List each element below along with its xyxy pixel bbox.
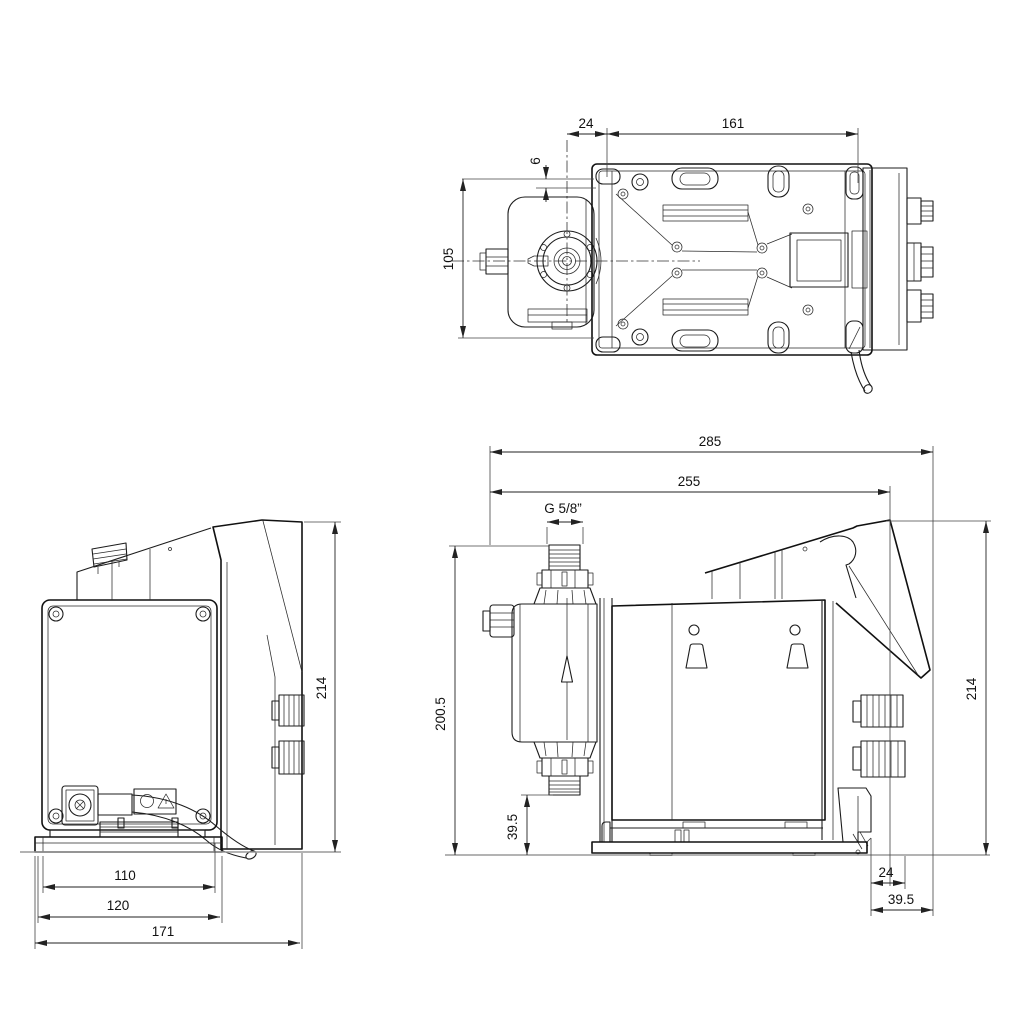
- top-view: 24 161 6 105: [441, 116, 933, 395]
- rear-view: 214 110 120 171: [20, 520, 341, 949]
- dim-top-105: 105: [441, 248, 456, 271]
- top-motor-housing: [480, 197, 601, 329]
- rear-mains-connector: [62, 786, 132, 825]
- dim-side-39-5-left: 39.5: [505, 814, 520, 840]
- dim-side-24: 24: [878, 865, 894, 880]
- rear-base: [35, 818, 222, 852]
- dim-top-24: 24: [578, 116, 594, 131]
- rear-view-dimensions: 214 110 120 171: [35, 522, 341, 949]
- flow-direction-arrow: [562, 598, 573, 740]
- side-dosing-head: [483, 545, 612, 842]
- side-wall-bracket: [838, 788, 871, 854]
- rear-control-panel: [213, 520, 304, 849]
- side-connector-knobs: [853, 695, 905, 777]
- top-mounting-plate: [592, 164, 872, 355]
- rear-connector-knobs: [272, 695, 304, 774]
- side-control-panel: [705, 520, 930, 678]
- dim-rear-171: 171: [152, 924, 175, 939]
- dim-rear-110: 110: [114, 868, 136, 883]
- rear-body: [42, 600, 217, 830]
- top-plate-ribs: [616, 194, 792, 326]
- top-view-centerlines: [452, 140, 700, 322]
- pump-dimensional-drawing: 24 161 6 105: [0, 0, 1024, 1024]
- top-connector-plugs: [907, 198, 933, 322]
- rear-top-housing: [77, 528, 211, 600]
- dim-side-285: 285: [699, 434, 722, 449]
- side-view: 285 255 G 5/8” 200.5 39.5 214 24 39.5: [433, 434, 991, 916]
- dim-top-6: 6: [528, 157, 543, 165]
- top-control-cube: [851, 168, 933, 395]
- dim-side-39-5-right: 39.5: [888, 892, 914, 907]
- side-base: [592, 822, 871, 856]
- rear-cable: [132, 795, 258, 861]
- dim-rear-214: 214: [314, 676, 329, 699]
- top-power-cable: [851, 350, 874, 395]
- side-view-dimensions: 285 255 G 5/8” 200.5 39.5 214 24 39.5: [433, 434, 991, 916]
- dim-side-thread: G 5/8”: [544, 501, 582, 516]
- dim-top-161: 161: [722, 116, 745, 131]
- side-motor-body: [612, 600, 833, 840]
- top-view-dimensions: 24 161 6 105: [441, 116, 858, 338]
- dim-side-214: 214: [964, 677, 979, 700]
- drawing-canvas: 24 161 6 105: [0, 0, 1024, 1024]
- dim-side-255: 255: [678, 474, 701, 489]
- dim-side-200-5: 200.5: [433, 697, 448, 731]
- dim-rear-120: 120: [107, 898, 130, 913]
